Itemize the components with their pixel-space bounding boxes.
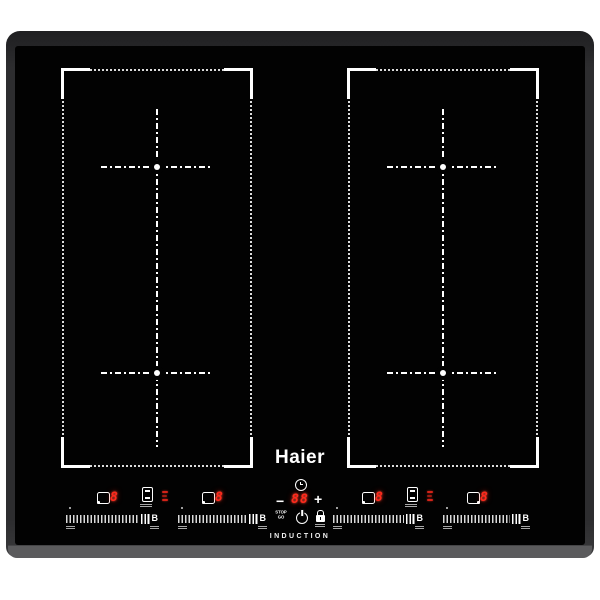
slider-ticks-end[interactable] [249,514,258,524]
haier-induction-hob: Haier 8 8 B B − 88 + STOP GO INDUCTION 8… [0,0,600,600]
corner-bracket-icon [347,68,376,99]
boost-label[interactable]: B [417,514,424,523]
brand-logo: Haier [0,447,600,469]
zone-select-icon[interactable] [362,492,375,504]
bridge-zone-icon[interactable] [407,487,418,502]
hob-front-edge [8,545,592,558]
heat-level-indicator-icon [427,491,434,503]
bridge-label-marks [405,503,417,507]
power-slider[interactable]: B [443,513,529,524]
micro-label-marks [150,526,159,529]
boost-label[interactable]: B [152,514,159,523]
zone-cross-vertical-line [156,109,158,447]
micro-label-marks [66,526,75,529]
induction-label: INDUCTION [0,533,600,540]
micro-label-marks [178,526,187,529]
zone-center-dot [440,164,446,170]
power-icon[interactable] [296,512,308,524]
zone-power-display: 8 [480,490,488,505]
micro-label-marks [415,526,424,529]
corner-bracket-icon [510,68,539,99]
power-slider[interactable]: B [333,513,423,524]
boost-label[interactable]: B [523,514,530,523]
cooking-zone-right [348,69,538,467]
zone-cross-vertical-line [442,109,444,447]
timer-minus-button[interactable]: − [276,494,284,508]
slider-ticks[interactable] [333,515,404,523]
slider-ticks-end[interactable] [512,514,521,524]
cooking-zone-left [62,69,252,467]
timer-display: 88 [287,492,313,507]
stop-go-label-bottom: GO [273,515,288,520]
zone-power-display: 8 [215,490,223,505]
stop-go-button[interactable]: STOP GO [273,510,288,521]
boost-label[interactable]: B [260,514,267,523]
slider-ticks-end[interactable] [141,514,150,524]
timer-clock-icon[interactable] [295,479,307,491]
timer-plus-button[interactable]: + [314,492,322,506]
heat-level-indicator-icon [162,491,169,503]
slider-min-mark [336,507,338,509]
micro-label-marks [315,524,325,527]
zone-select-icon[interactable] [202,492,215,504]
zone-select-icon[interactable] [467,492,480,504]
zone-power-display: 8 [375,490,383,505]
slider-ticks[interactable] [66,515,139,523]
zone-center-dot [154,164,160,170]
corner-bracket-icon [224,68,253,99]
zone-select-icon[interactable] [97,492,110,504]
slider-min-mark [446,507,448,509]
bridge-zone-icon[interactable] [142,487,153,502]
zone-center-dot [440,370,446,376]
slider-min-mark [69,507,71,509]
corner-bracket-icon [61,68,90,99]
micro-label-marks [521,526,530,529]
micro-label-marks [258,526,267,529]
lock-icon[interactable] [316,515,325,522]
slider-min-mark [181,507,183,509]
zone-center-dot [154,370,160,376]
micro-label-marks [333,526,342,529]
zone-power-display: 8 [110,490,118,505]
power-slider[interactable]: B [178,513,266,524]
bridge-label-marks [140,503,152,507]
micro-label-marks [443,526,452,529]
slider-ticks[interactable] [443,515,510,523]
slider-ticks-end[interactable] [406,514,415,524]
slider-ticks[interactable] [178,515,247,523]
power-slider[interactable]: B [66,513,158,524]
